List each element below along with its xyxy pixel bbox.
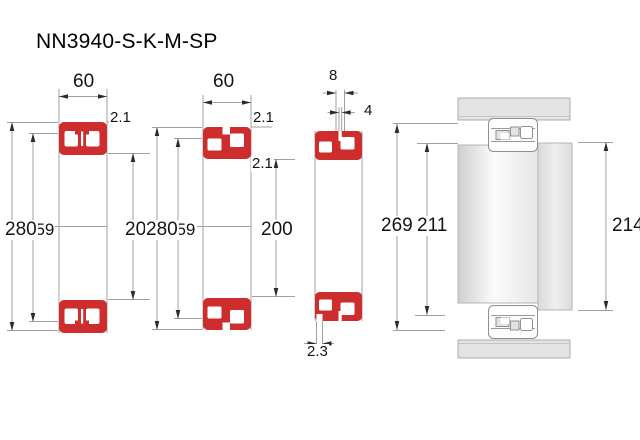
mounted-arrangement-view [458, 98, 572, 358]
dim-label-chamfer-v1: 2.1 [109, 110, 132, 126]
dim-label-width-v2: 60 [212, 72, 235, 92]
shaft [458, 145, 538, 303]
drawing-canvas [0, 0, 640, 440]
dim-label-slot-width-v3: 2.3 [306, 344, 329, 360]
dim-label-shoulder-dia-v4: 214 [611, 216, 640, 236]
shaft-shoulder [538, 143, 572, 310]
dim-label-hole-dia-v3: 4 [363, 103, 373, 119]
dim-label-shaft-abutment-v3: 211 [416, 216, 448, 236]
mounted-bearing-section-top [489, 119, 538, 152]
bearing-cross-section-view1 [59, 122, 107, 333]
dim-label-bore-v2: 200 [260, 220, 294, 240]
bearing-cross-section-view2 [203, 127, 251, 330]
mounted-bearing-section-bottom [489, 306, 538, 339]
dim-label-groove-width-v3: 8 [328, 68, 338, 84]
dim-label-chamfer-outer-v2: 2.1 [252, 110, 275, 126]
dim-label-od-v2: 280 [145, 220, 179, 240]
dim-label-od-v1: 280 [4, 220, 38, 240]
dim-label-housing-abutment-v3: 269 [380, 216, 414, 236]
dim-label-width-v1: 60 [72, 72, 95, 92]
inner-ring-slot [317, 314, 323, 322]
bearing-drawing-page: NN3940-S-K-M-SP [0, 0, 640, 440]
dim-label-chamfer-inner-v2: 2.1 [251, 156, 274, 172]
housing-block-bottom [458, 340, 570, 358]
bearing-cross-section-view3 [315, 131, 362, 322]
